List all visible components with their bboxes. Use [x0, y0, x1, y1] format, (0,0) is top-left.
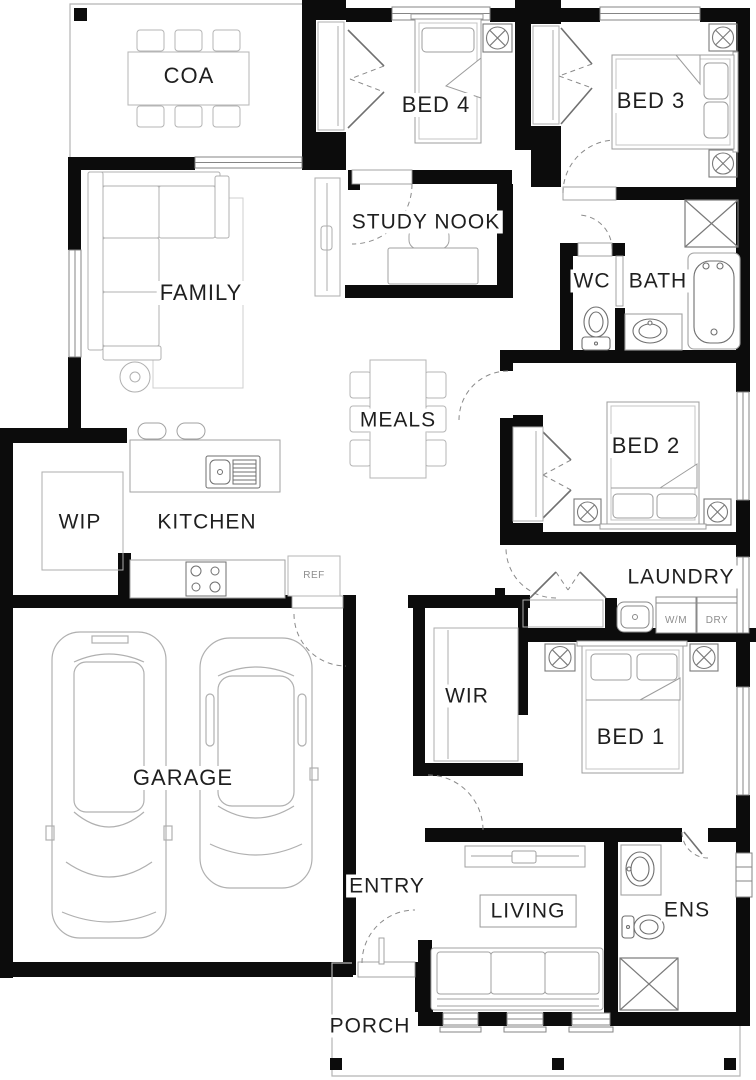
garage-car-right: [194, 638, 318, 888]
room-label-family: FAMILY: [157, 281, 246, 305]
porch-posts: [330, 1058, 736, 1070]
room-label-bed3: BED 3: [614, 89, 689, 113]
room-label-ens: ENS: [661, 899, 713, 922]
room-label-porch: PORCH: [327, 1015, 414, 1038]
room-label-garage: GARAGE: [130, 766, 236, 790]
living-furniture: [431, 846, 603, 1010]
room-label-bed1: BED 1: [594, 725, 669, 749]
bed4-furniture: [411, 14, 483, 143]
room-label-kitchen: KITCHEN: [154, 511, 259, 534]
room-label-bath: BATH: [626, 270, 690, 293]
floor-plan: COA BED 4 BED 3 STUDY NOOK FAMILY WC BAT…: [0, 0, 756, 1080]
room-label-coa: COA: [161, 64, 218, 88]
room-label-wip: WIP: [56, 511, 105, 534]
floor-plan-drawing: [0, 0, 756, 1080]
room-label-meals: MEALS: [357, 409, 439, 432]
room-label-bed2: BED 2: [609, 434, 684, 458]
room-label-living: LIVING: [480, 895, 577, 928]
ensuite-fixtures: [621, 845, 664, 939]
room-label-study-nook: STUDY NOOK: [349, 211, 503, 234]
wc-bath-fixtures: [582, 253, 740, 350]
bed1-furniture: [577, 641, 687, 773]
appliance-label-fridge: REF: [303, 571, 325, 581]
room-label-wc: WC: [571, 270, 614, 293]
appliance-label-dryer: DRY: [706, 616, 728, 626]
bed2-furniture: [600, 402, 706, 529]
room-label-laundry: LAUNDRY: [625, 566, 738, 589]
appliance-label-washing-machine: W/M: [665, 616, 687, 626]
room-label-bed4: BED 4: [399, 93, 474, 117]
room-label-wir: WIR: [442, 685, 492, 708]
room-label-entry: ENTRY: [346, 875, 428, 898]
